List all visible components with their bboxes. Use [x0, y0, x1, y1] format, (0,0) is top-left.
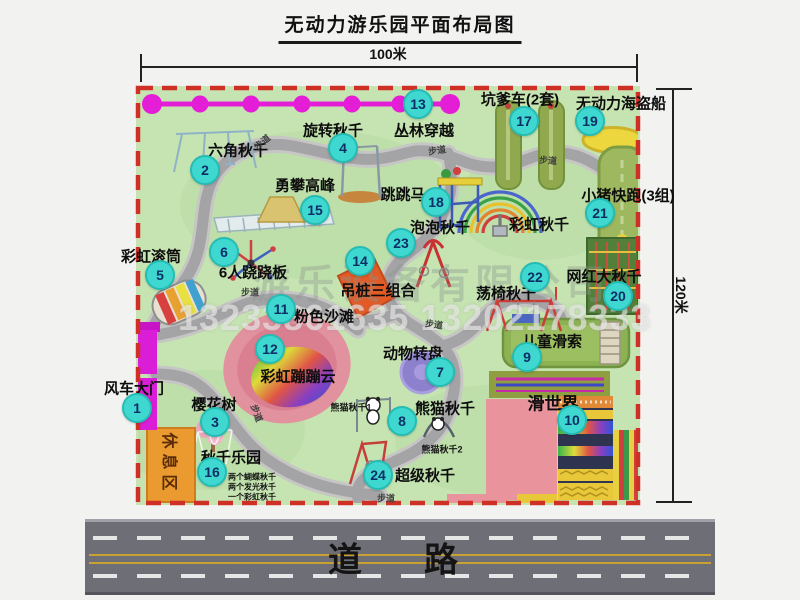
map-label: 步道	[241, 286, 259, 299]
attraction-number: 2	[201, 162, 209, 178]
map-label: 步道	[539, 153, 558, 167]
attraction-marker: 9	[512, 342, 542, 372]
map-label: 休息区	[159, 432, 183, 495]
attraction-number: 11	[274, 301, 289, 317]
attraction-number: 14	[352, 253, 368, 269]
attraction-number: 12	[262, 341, 278, 357]
map-label: 勇攀高峰	[275, 175, 335, 196]
attraction-marker: 18	[421, 187, 451, 217]
map-label: 熊猫秋千2	[421, 443, 462, 456]
attraction-number: 17	[516, 113, 532, 129]
attraction-number: 4	[339, 140, 347, 156]
attraction-number: 9	[523, 349, 531, 365]
attraction-marker: 13	[403, 89, 433, 119]
map-label: 步道	[377, 492, 395, 505]
map-label: 粉色沙滩	[294, 306, 354, 327]
attraction-marker: 11	[266, 294, 296, 324]
attraction-marker: 1	[122, 393, 152, 423]
attraction-marker: 3	[200, 407, 230, 437]
attraction-marker: 17	[509, 106, 539, 136]
attraction-number: 22	[527, 269, 543, 285]
attraction-marker: 22	[520, 262, 550, 292]
attraction-marker: 8	[387, 406, 417, 436]
attraction-marker: 10	[557, 405, 587, 435]
attraction-number: 21	[592, 205, 608, 221]
map-label: 步道	[424, 316, 444, 331]
attraction-marker: 2	[190, 155, 220, 185]
map-label: 步道	[427, 142, 447, 157]
map-label: 跳跳马	[380, 184, 425, 205]
attraction-number: 3	[211, 414, 219, 430]
map-label: 泡泡秋千	[410, 217, 470, 238]
attraction-marker: 24	[363, 460, 393, 490]
attraction-marker: 12	[255, 334, 285, 364]
map-label: 熊猫秋千	[415, 398, 475, 419]
attraction-marker: 5	[145, 260, 175, 290]
attraction-marker: 21	[585, 198, 615, 228]
attraction-marker: 14	[345, 246, 375, 276]
attraction-number: 19	[582, 113, 598, 129]
attraction-number: 20	[610, 288, 626, 304]
attraction-number: 5	[156, 267, 164, 283]
attraction-number: 24	[370, 467, 386, 483]
attraction-number: 8	[398, 413, 406, 429]
attraction-number: 15	[307, 202, 323, 218]
attraction-number: 7	[436, 364, 444, 380]
attraction-number: 13	[410, 96, 426, 112]
road: 道 路	[85, 519, 715, 595]
map-label: 超级秋千	[395, 465, 455, 486]
attraction-number: 1	[133, 400, 141, 416]
road-label: 道 路	[328, 533, 472, 582]
map-label: 吊桩三组合	[340, 280, 415, 301]
attraction-number: 18	[428, 194, 444, 210]
park-layout-diagram: 无动力游乐园平面布局图 100米 120米	[0, 0, 800, 600]
map-label: 网红大秋千	[566, 266, 641, 287]
attraction-marker: 4	[328, 133, 358, 163]
attraction-marker: 19	[575, 106, 605, 136]
attraction-marker: 15	[300, 195, 330, 225]
attraction-marker: 7	[425, 357, 455, 387]
map-label: 彩虹蹦蹦云	[260, 366, 335, 387]
map-label: 一个彩虹秋千	[228, 492, 276, 503]
attraction-number: 23	[393, 235, 409, 251]
attraction-marker: 23	[386, 228, 416, 258]
map-label: 彩虹秋千	[509, 214, 569, 235]
map-label: 熊猫秋千1	[330, 401, 371, 414]
attraction-marker: 6	[209, 237, 239, 267]
attraction-number: 6	[220, 244, 228, 260]
attraction-marker: 16	[197, 457, 227, 487]
map-label: 丛林穿越	[394, 120, 454, 141]
attraction-number: 10	[564, 412, 580, 428]
attraction-number: 16	[204, 464, 220, 480]
attraction-marker: 20	[603, 281, 633, 311]
